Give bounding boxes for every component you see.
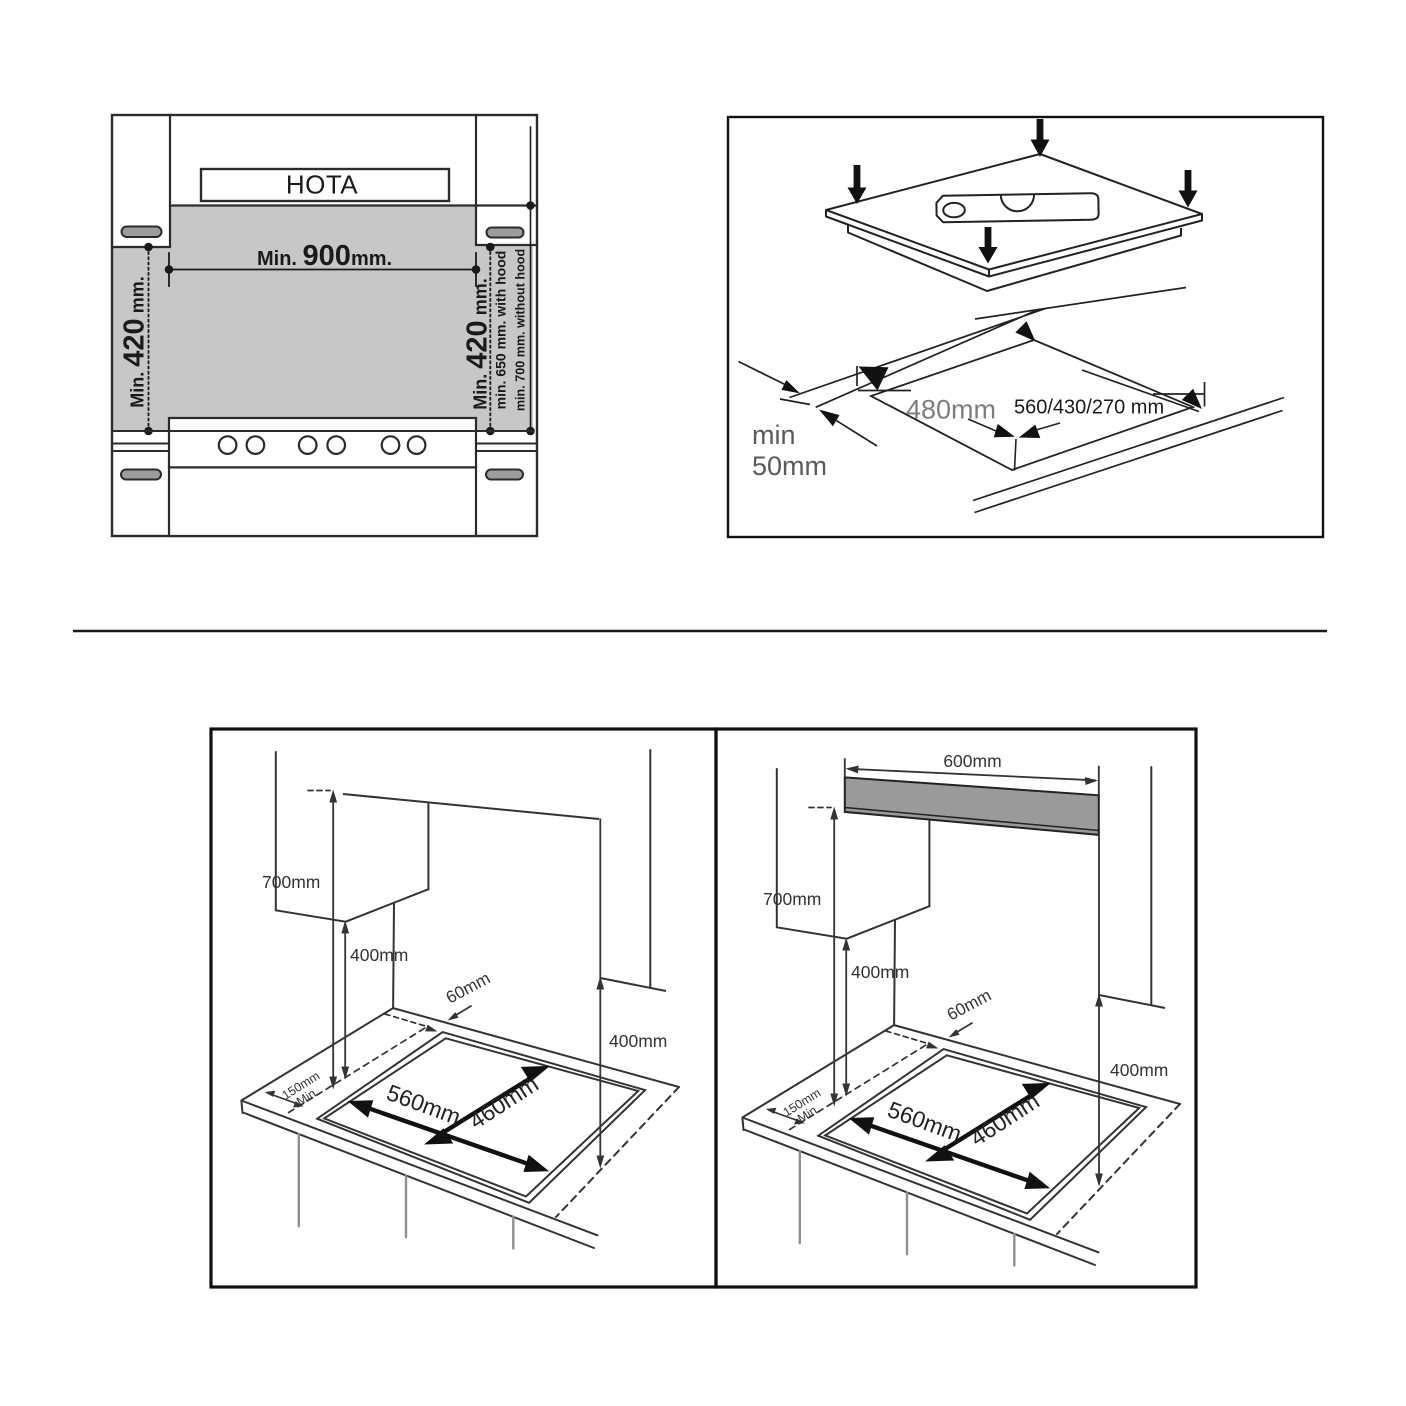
svg-text:min. 700 mm. without hood: min. 700 mm. without hood	[514, 249, 528, 411]
svg-text:400mm: 400mm	[1110, 1060, 1168, 1080]
svg-text:HOTA: HOTA	[286, 170, 358, 200]
svg-text:600mm: 600mm	[943, 751, 1001, 771]
svg-text:400mm: 400mm	[609, 1031, 667, 1051]
svg-text:min: min	[752, 420, 796, 450]
svg-text:560/430/270 mm: 560/430/270 mm	[1014, 397, 1164, 419]
svg-text:480mm: 480mm	[906, 395, 996, 425]
svg-text:min. 650 mm. with hood: min. 650 mm. with hood	[493, 251, 509, 410]
svg-text:50mm: 50mm	[752, 451, 827, 481]
